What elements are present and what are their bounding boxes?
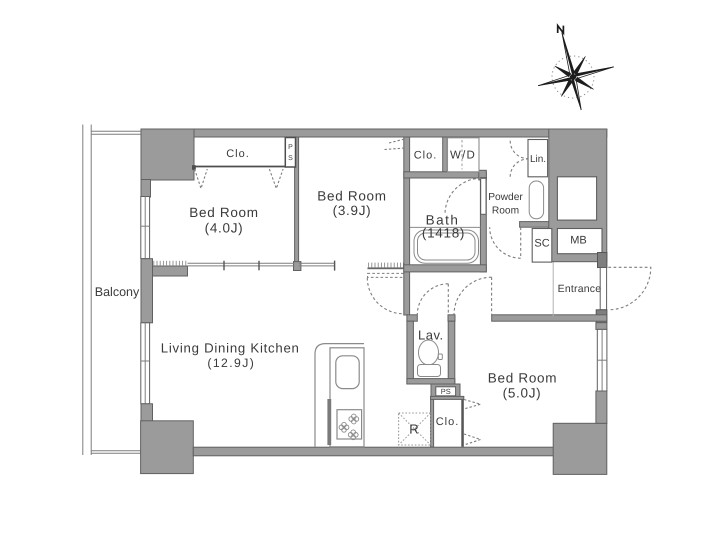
svg-text:MB: MB <box>570 235 587 247</box>
svg-text:(3.9J): (3.9J) <box>333 203 372 218</box>
svg-text:Powder: Powder <box>488 192 523 203</box>
svg-text:Entrance: Entrance <box>558 283 602 295</box>
svg-text:(5.0J): (5.0J) <box>503 385 542 400</box>
svg-text:Clo.: Clo. <box>226 148 250 160</box>
svg-text:Lin.: Lin. <box>530 154 546 165</box>
svg-text:R: R <box>409 421 418 436</box>
svg-text:SC: SC <box>534 238 549 250</box>
svg-text:W/D: W/D <box>450 150 476 162</box>
svg-text:Bed Room: Bed Room <box>488 370 557 385</box>
svg-text:Balcony: Balcony <box>95 285 140 299</box>
svg-text:S: S <box>288 155 293 162</box>
svg-text:(4.0J): (4.0J) <box>205 221 244 236</box>
svg-text:(1418): (1418) <box>422 225 465 240</box>
svg-text:Living Dining Kitchen: Living Dining Kitchen <box>161 341 300 356</box>
svg-text:P: P <box>288 144 293 151</box>
svg-text:Clo.: Clo. <box>436 416 460 428</box>
svg-text:PS: PS <box>441 387 451 396</box>
svg-text:Bed Room: Bed Room <box>317 188 386 203</box>
svg-text:(12.9J): (12.9J) <box>207 356 255 370</box>
svg-text:Room: Room <box>492 206 519 217</box>
svg-text:Clo.: Clo. <box>414 149 438 161</box>
svg-text:Bed Room: Bed Room <box>189 205 258 220</box>
